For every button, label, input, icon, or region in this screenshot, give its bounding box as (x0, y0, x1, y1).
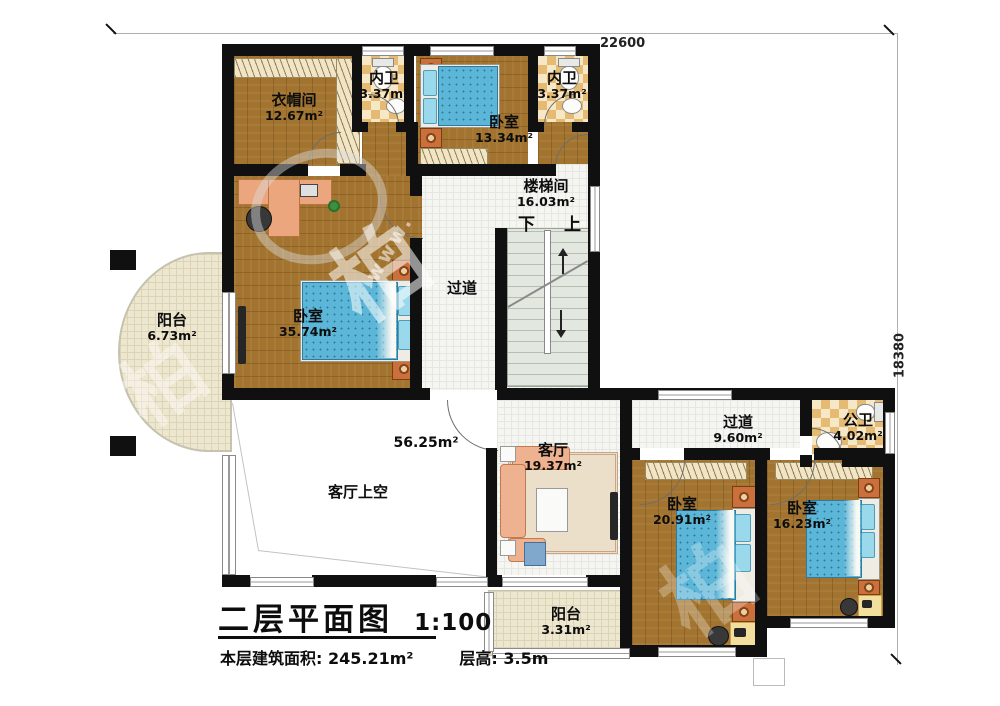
nightstand (732, 602, 756, 622)
room-area: 3.37m² (530, 87, 594, 101)
room-label-balcony-bottom: 阳台 3.31m² (528, 606, 604, 637)
room-label-corridor-mid: 过道 (430, 280, 494, 297)
dimension-tick (890, 653, 901, 664)
room-label-balcony-left: 阳台 6.73m² (134, 312, 210, 343)
stair-arrow-head (556, 330, 566, 338)
room-area: 9.60m² (700, 431, 776, 445)
window (430, 46, 494, 56)
pillow (861, 504, 875, 530)
window (544, 46, 576, 56)
room-label-living: 客厅 19.37m² (516, 442, 590, 473)
computer-monitor (300, 184, 318, 197)
plant (328, 200, 340, 212)
room-name: 衣帽间 (238, 92, 350, 109)
stairs-up-label: 上 (564, 210, 581, 235)
pillow (423, 70, 437, 96)
wall (312, 575, 436, 587)
window (790, 618, 868, 628)
wall (632, 448, 640, 460)
room-name: 客厅 (516, 442, 590, 459)
pillow (735, 514, 751, 542)
room-area: 16.03m² (494, 195, 598, 209)
room-name: 卧室 (636, 496, 728, 513)
desk-return (268, 179, 300, 237)
wall (222, 266, 234, 292)
desk-lamp (734, 628, 746, 637)
wall (495, 228, 507, 390)
dimension-tick (105, 23, 116, 34)
room-label-cloakroom: 衣帽间 12.67m² (238, 92, 350, 123)
side-table (500, 446, 516, 462)
wall (572, 122, 600, 132)
wall (486, 575, 502, 587)
room-area: 3.37m² (352, 87, 416, 101)
room-area: 12.67m² (238, 109, 350, 123)
wall (406, 164, 556, 176)
room-name: 卧室 (268, 308, 348, 325)
room-name: 阳台 (134, 312, 210, 329)
room-name: 公卫 (824, 412, 892, 429)
stairs-down-label: 下 (518, 210, 535, 235)
desk-lamp (862, 600, 872, 608)
window (502, 577, 588, 587)
wall (222, 164, 308, 176)
room-area: 3.31m² (528, 623, 604, 637)
window (250, 577, 314, 587)
room-name: 卧室 (458, 114, 550, 131)
title-underline (218, 636, 436, 639)
wall (814, 448, 883, 460)
pillow (423, 98, 437, 124)
room-label-public-bath: 公卫 4.02m² (824, 412, 892, 443)
exterior-pier-outline (753, 658, 785, 686)
wall (410, 238, 422, 390)
wall (410, 176, 422, 196)
wall (486, 448, 497, 575)
window (658, 390, 732, 400)
pillow (735, 544, 751, 572)
tv (238, 306, 246, 364)
wall (684, 448, 770, 460)
room-name: 阳台 (528, 606, 604, 623)
room-label-living-void: 客厅上空 (312, 484, 404, 501)
room-name: 内卫 (530, 70, 594, 87)
room-label-bedroom-top: 卧室 13.34m² (458, 114, 550, 145)
stair-rail (544, 230, 551, 354)
wall (222, 575, 250, 587)
floor-cushion (524, 542, 546, 566)
room-name: 内卫 (352, 70, 416, 87)
balcony-left-floor (118, 252, 232, 452)
window (436, 577, 488, 587)
stair-arrow-head (558, 248, 568, 256)
room-area: 56.25m² (386, 436, 466, 452)
room-name: 卧室 (756, 500, 848, 517)
wall (800, 455, 812, 467)
desk-chair (840, 598, 858, 616)
floor-height-text: 层高: 3.5m (459, 645, 548, 669)
wall (352, 122, 368, 132)
room-name: 过道 (700, 414, 776, 431)
pillow (861, 532, 875, 558)
nightstand (858, 580, 880, 595)
room-label-ensuite-right: 内卫 3.37m² (530, 70, 594, 101)
room-name: 过道 (430, 280, 494, 297)
room-label-bedroom-se: 卧室 16.23m² (756, 500, 848, 531)
dimension-top: 22600 (600, 36, 645, 51)
room-area: 6.73m² (134, 329, 210, 343)
wall (620, 400, 632, 657)
wall (497, 388, 600, 400)
side-table (500, 540, 516, 556)
coffee-table (536, 488, 568, 532)
wall (222, 56, 234, 266)
room-label-ensuite-left: 内卫 3.37m² (352, 70, 416, 101)
wall (110, 436, 136, 456)
info-line: 本层建筑面积: 245.21m² 层高: 3.5m (220, 645, 548, 669)
window (658, 647, 736, 657)
room-area: 19.37m² (516, 459, 590, 473)
nightstand (858, 478, 880, 498)
wall (110, 250, 136, 270)
dimension-line-top (113, 33, 897, 34)
room-label-stairwell: 楼梯间 16.03m² (494, 178, 598, 209)
room-area: 4.02m² (824, 429, 892, 443)
desk-chair (708, 626, 729, 646)
title-block: 二层平面图 1:100 (218, 594, 492, 639)
wall (800, 400, 812, 436)
bed-sheet-fold (376, 282, 396, 358)
room-label-master-bedroom: 卧室 35.74m² (268, 308, 348, 339)
room-area: 35.74m² (268, 325, 348, 339)
wall (222, 372, 234, 388)
floor-area-text: 本层建筑面积: 245.21m² (220, 645, 413, 669)
wall (340, 164, 366, 176)
room-area: 16.23m² (756, 517, 848, 531)
window (222, 455, 236, 575)
nightstand (732, 486, 756, 508)
window (362, 46, 404, 56)
room-area: 20.91m² (636, 513, 728, 527)
void-area-label: 56.25m² (386, 436, 466, 452)
wall (222, 388, 430, 400)
plan-title: 二层平面图 (218, 594, 393, 639)
floor-plan: 柏 柏 柏 www. 22600 18380 衣帽间 12.67m² 内卫 3.… (0, 0, 1000, 706)
window (222, 292, 236, 374)
stair-arrow (560, 310, 562, 332)
room-name: 客厅上空 (312, 484, 404, 501)
desk-chair (246, 206, 272, 232)
wall (600, 388, 895, 400)
sofa (500, 464, 526, 538)
room-area: 13.34m² (458, 131, 550, 145)
tv (610, 492, 618, 540)
room-name: 楼梯间 (494, 178, 598, 195)
room-label-bedroom-sw: 卧室 20.91m² (636, 496, 728, 527)
room-label-corridor-right: 过道 9.60m² (700, 414, 776, 445)
plan-scale: 1:100 (414, 610, 492, 636)
nightstand (420, 128, 442, 148)
dimension-right: 18380 (893, 326, 908, 386)
